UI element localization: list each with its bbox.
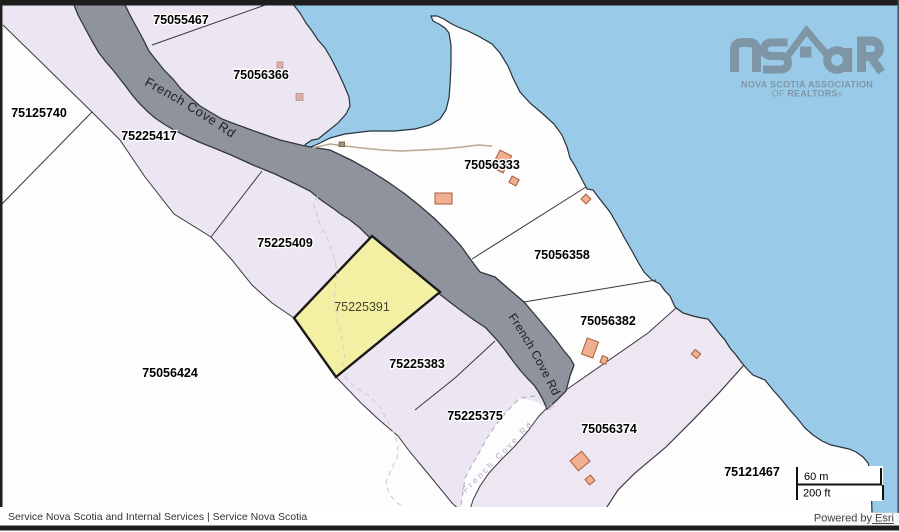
svg-text:200 ft: 200 ft [803, 488, 831, 500]
svg-text:75225417: 75225417 [121, 129, 177, 143]
svg-text:Powered by Esri: Powered by Esri [814, 513, 894, 525]
svg-text:75225375: 75225375 [447, 409, 503, 423]
svg-text:75056424: 75056424 [142, 366, 198, 380]
svg-text:75225409: 75225409 [257, 236, 313, 250]
svg-text:75056333: 75056333 [464, 158, 520, 172]
svg-text:75225383: 75225383 [389, 357, 445, 371]
svg-text:75056358: 75056358 [534, 248, 590, 262]
svg-text:Service Nova Scotia and Intern: Service Nova Scotia and Internal Service… [8, 511, 307, 523]
svg-text:75056374: 75056374 [581, 422, 637, 436]
svg-text:60 m: 60 m [804, 471, 828, 483]
svg-text:75125740: 75125740 [11, 106, 67, 120]
svg-text:75056382: 75056382 [580, 314, 636, 328]
svg-text:OF REALTORS®: OF REALTORS® [772, 89, 843, 99]
svg-text:75121467: 75121467 [724, 465, 780, 479]
svg-text:75225391: 75225391 [334, 300, 390, 314]
svg-text:75055467: 75055467 [153, 13, 209, 27]
svg-text:75056366: 75056366 [233, 68, 289, 82]
